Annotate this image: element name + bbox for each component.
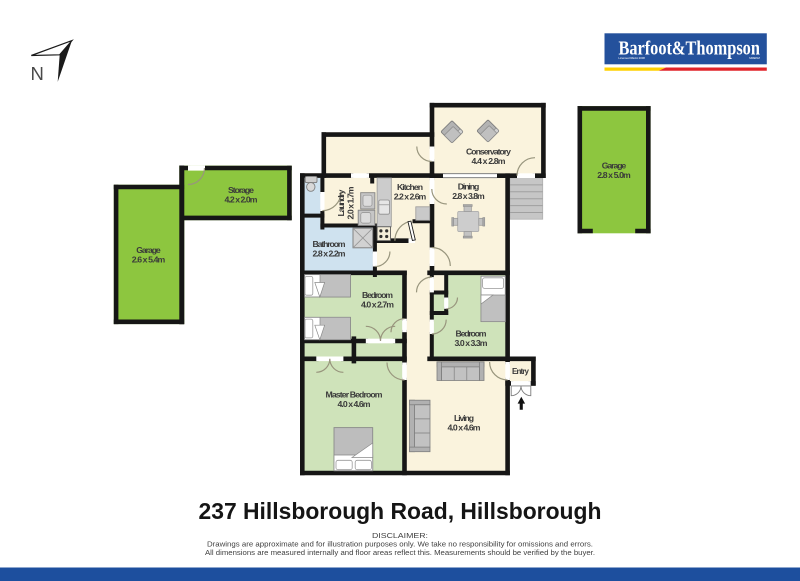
svg-text:Bathroom: Bathroom xyxy=(313,239,346,249)
svg-text:All dimensions are measured in: All dimensions are measured internally a… xyxy=(205,550,595,557)
svg-text:2.0 x 1.7m: 2.0 x 1.7m xyxy=(345,186,355,219)
svg-text:Dining: Dining xyxy=(458,182,480,192)
svg-text:Garage: Garage xyxy=(602,161,627,171)
svg-text:Bedroom: Bedroom xyxy=(362,290,393,300)
svg-text:Garage: Garage xyxy=(136,245,161,255)
svg-text:2.8 x 5.0m: 2.8 x 5.0m xyxy=(597,170,631,180)
svg-text:4.0 x 4.6m: 4.0 x 4.6m xyxy=(448,423,481,433)
svg-text:Drawings are approximate and f: Drawings are approximate and for illustr… xyxy=(207,541,593,548)
svg-text:DISCLAIMER:: DISCLAIMER: xyxy=(372,533,428,540)
svg-text:MREINZ: MREINZ xyxy=(749,56,760,60)
svg-text:Storage: Storage xyxy=(228,185,254,195)
svg-text:4.4 x 2.8m: 4.4 x 2.8m xyxy=(472,156,506,166)
svg-text:Kitchen: Kitchen xyxy=(397,182,423,192)
svg-text:2.8 x 2.2m: 2.8 x 2.2m xyxy=(313,249,346,259)
svg-text:237 Hillsborough Road, Hillsbo: 237 Hillsborough Road, Hillsborough xyxy=(199,498,602,524)
svg-text:2.8 x 3.8m: 2.8 x 3.8m xyxy=(452,191,485,201)
svg-text:N: N xyxy=(31,63,44,84)
svg-text:Entry: Entry xyxy=(512,367,530,376)
svg-text:Laundry: Laundry xyxy=(336,189,346,216)
svg-text:4.2 x 2.0m: 4.2 x 2.0m xyxy=(225,195,258,205)
svg-text:Conservatory: Conservatory xyxy=(466,147,511,157)
svg-text:Living: Living xyxy=(454,413,474,423)
svg-text:2.6 x 5.4m: 2.6 x 5.4m xyxy=(132,255,166,265)
svg-text:2.2 x 2.6m: 2.2 x 2.6m xyxy=(394,192,427,202)
svg-text:Licensed REAA 2008: Licensed REAA 2008 xyxy=(618,56,645,60)
svg-text:Bedroom: Bedroom xyxy=(456,329,487,339)
svg-text:3.0 x 3.3m: 3.0 x 3.3m xyxy=(455,338,488,348)
svg-text:4.0 x 4.6m: 4.0 x 4.6m xyxy=(338,399,371,409)
svg-text:4.0 x 2.7m: 4.0 x 2.7m xyxy=(361,300,394,310)
svg-text:Master Bedroom: Master Bedroom xyxy=(326,390,383,400)
